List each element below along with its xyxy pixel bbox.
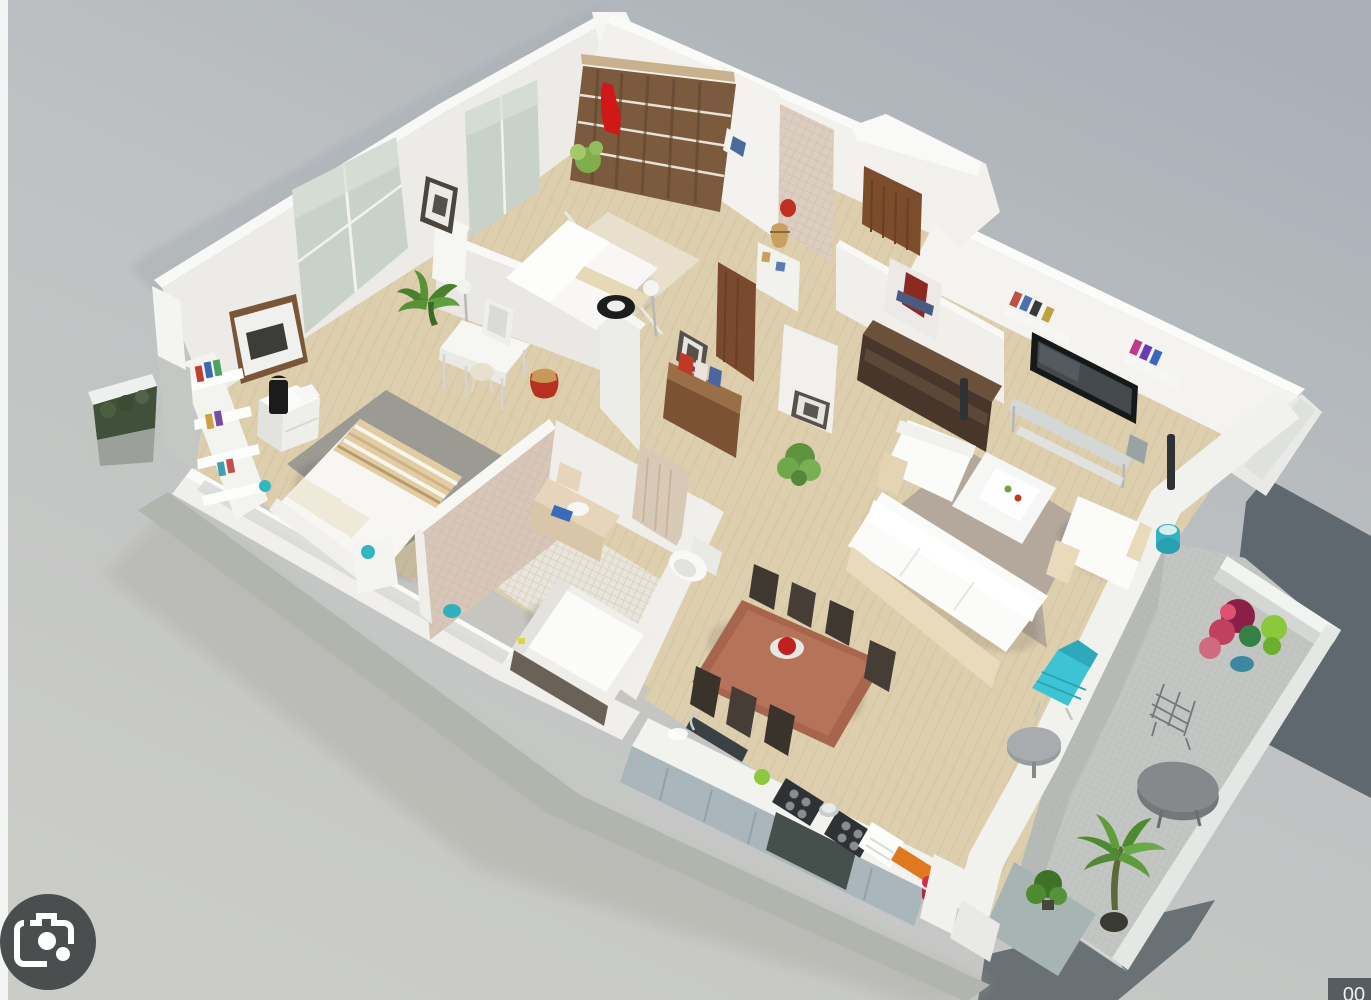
svg-text:00: 00 [1343,984,1365,1000]
